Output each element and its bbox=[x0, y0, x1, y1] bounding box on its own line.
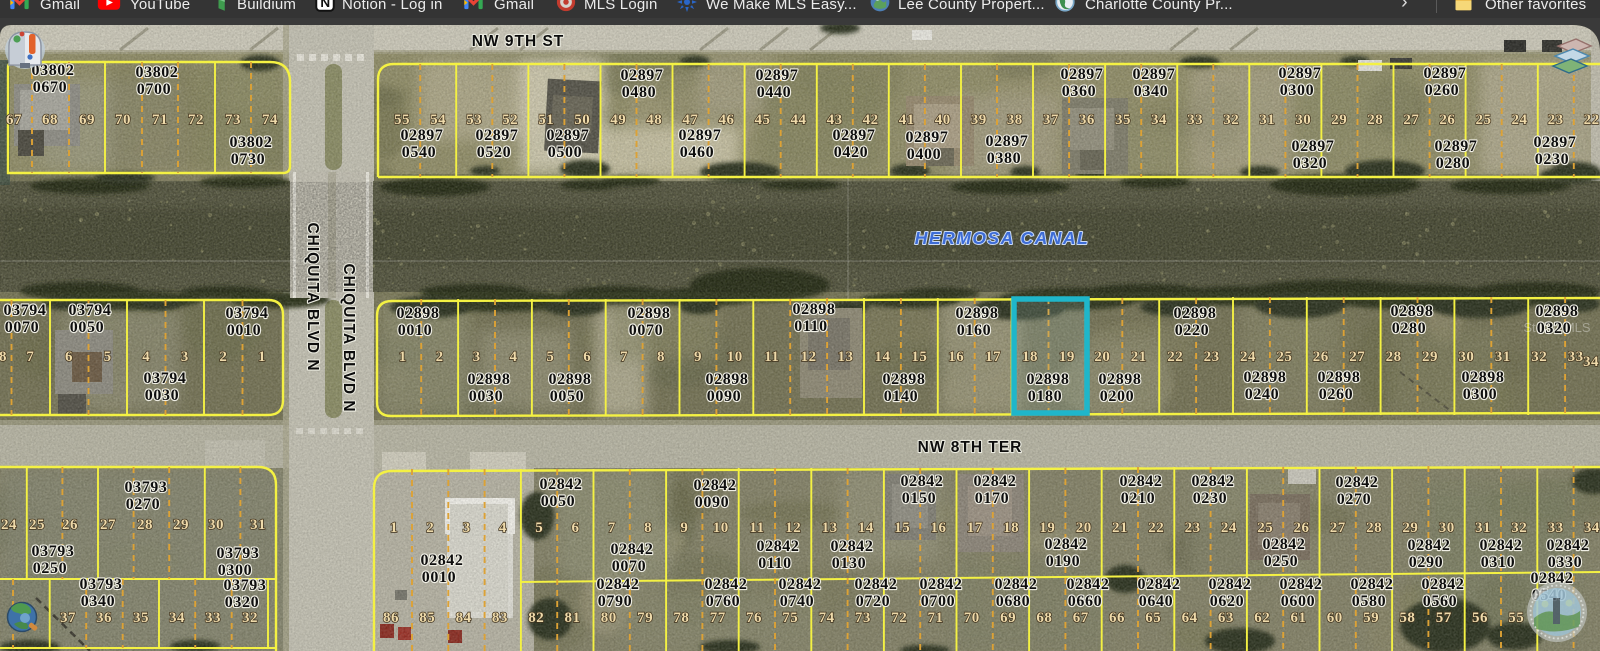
svg-text:24: 24 bbox=[1240, 349, 1256, 365]
svg-text:02898: 02898 bbox=[883, 371, 926, 388]
svg-text:02898: 02898 bbox=[706, 371, 749, 388]
svg-text:03793: 03793 bbox=[224, 577, 267, 594]
svg-text:32: 32 bbox=[1511, 520, 1527, 536]
svg-text:23: 23 bbox=[1548, 112, 1564, 128]
svg-text:0220: 0220 bbox=[1175, 322, 1209, 339]
svg-text:02842: 02842 bbox=[611, 541, 654, 558]
svg-text:0360: 0360 bbox=[1062, 83, 1096, 100]
svg-text:12: 12 bbox=[801, 349, 817, 365]
svg-text:02898: 02898 bbox=[1318, 369, 1361, 386]
svg-text:4: 4 bbox=[499, 520, 507, 536]
svg-text:72: 72 bbox=[891, 610, 907, 626]
svg-text:02842: 02842 bbox=[421, 552, 464, 569]
svg-text:74: 74 bbox=[819, 610, 835, 626]
svg-text:77: 77 bbox=[710, 610, 726, 626]
svg-text:58: 58 bbox=[1399, 610, 1415, 626]
svg-text:0400: 0400 bbox=[907, 146, 941, 163]
svg-text:24: 24 bbox=[1221, 520, 1237, 536]
svg-text:02842: 02842 bbox=[705, 576, 748, 593]
svg-text:02842: 02842 bbox=[995, 576, 1038, 593]
svg-text:21: 21 bbox=[1112, 520, 1128, 536]
svg-text:30: 30 bbox=[208, 517, 224, 533]
svg-text:19: 19 bbox=[1039, 520, 1055, 536]
svg-text:0090: 0090 bbox=[695, 494, 729, 511]
svg-text:0010: 0010 bbox=[227, 322, 261, 339]
svg-text:02897: 02897 bbox=[547, 127, 590, 144]
svg-text:0170: 0170 bbox=[975, 490, 1009, 507]
svg-text:0030: 0030 bbox=[145, 387, 179, 404]
svg-text:29: 29 bbox=[1331, 112, 1347, 128]
svg-text:34: 34 bbox=[1584, 520, 1600, 536]
svg-text:66: 66 bbox=[1109, 610, 1125, 626]
svg-text:0050: 0050 bbox=[550, 388, 584, 405]
svg-text:27: 27 bbox=[1403, 112, 1419, 128]
svg-text:20: 20 bbox=[1094, 349, 1110, 365]
svg-text:4: 4 bbox=[142, 349, 150, 365]
svg-text:02897: 02897 bbox=[679, 127, 722, 144]
svg-text:0070: 0070 bbox=[629, 322, 663, 339]
svg-text:32: 32 bbox=[242, 610, 258, 626]
svg-text:0240: 0240 bbox=[1245, 386, 1279, 403]
svg-text:03793: 03793 bbox=[125, 479, 168, 496]
svg-text:0560: 0560 bbox=[1423, 593, 1457, 610]
svg-text:02842: 02842 bbox=[1138, 576, 1181, 593]
svg-text:0300: 0300 bbox=[1280, 82, 1314, 99]
svg-text:34: 34 bbox=[1151, 112, 1167, 128]
svg-text:02842: 02842 bbox=[1192, 473, 1235, 490]
svg-text:25: 25 bbox=[1276, 349, 1292, 365]
svg-text:73: 73 bbox=[855, 610, 871, 626]
svg-text:30: 30 bbox=[1439, 520, 1455, 536]
svg-text:16: 16 bbox=[931, 520, 947, 536]
svg-text:27: 27 bbox=[100, 517, 116, 533]
svg-text:8: 8 bbox=[0, 349, 7, 365]
svg-text:0210: 0210 bbox=[1121, 490, 1155, 507]
svg-text:0320: 0320 bbox=[225, 594, 259, 611]
svg-text:79: 79 bbox=[637, 610, 653, 626]
svg-text:75: 75 bbox=[782, 610, 798, 626]
svg-text:25: 25 bbox=[1257, 520, 1273, 536]
svg-text:8: 8 bbox=[644, 520, 652, 536]
svg-text:44: 44 bbox=[791, 112, 807, 128]
svg-text:74: 74 bbox=[262, 112, 278, 128]
svg-text:26: 26 bbox=[1439, 112, 1455, 128]
svg-text:02842: 02842 bbox=[779, 576, 822, 593]
svg-text:02842: 02842 bbox=[1263, 536, 1306, 553]
svg-text:33: 33 bbox=[1187, 112, 1203, 128]
svg-text:0340: 0340 bbox=[1134, 83, 1168, 100]
svg-text:46: 46 bbox=[719, 112, 735, 128]
svg-text:0310: 0310 bbox=[1481, 554, 1515, 571]
svg-text:0680: 0680 bbox=[996, 593, 1030, 610]
svg-text:02898: 02898 bbox=[1027, 371, 1070, 388]
svg-text:32: 32 bbox=[1531, 349, 1547, 365]
svg-text:24: 24 bbox=[1512, 112, 1528, 128]
svg-text:0160: 0160 bbox=[957, 322, 991, 339]
svg-text:80: 80 bbox=[601, 610, 617, 626]
svg-text:02842: 02842 bbox=[1351, 576, 1394, 593]
svg-text:7: 7 bbox=[608, 520, 616, 536]
svg-text:11: 11 bbox=[749, 520, 764, 536]
svg-text:29: 29 bbox=[173, 517, 189, 533]
svg-text:0580: 0580 bbox=[1352, 593, 1386, 610]
svg-text:02842: 02842 bbox=[1408, 537, 1451, 554]
svg-text:0640: 0640 bbox=[1139, 593, 1173, 610]
svg-text:21: 21 bbox=[1131, 349, 1147, 365]
svg-text:76: 76 bbox=[746, 610, 762, 626]
svg-text:14: 14 bbox=[858, 520, 874, 536]
svg-text:28: 28 bbox=[137, 517, 153, 533]
svg-text:0270: 0270 bbox=[1337, 491, 1371, 508]
svg-text:0320: 0320 bbox=[1537, 320, 1571, 337]
svg-text:0010: 0010 bbox=[422, 569, 456, 586]
svg-text:0520: 0520 bbox=[477, 144, 511, 161]
svg-text:0740: 0740 bbox=[780, 593, 814, 610]
svg-text:3: 3 bbox=[473, 349, 481, 365]
svg-text:31: 31 bbox=[1495, 349, 1511, 365]
svg-text:71: 71 bbox=[152, 112, 168, 128]
svg-text:0180: 0180 bbox=[1028, 388, 1062, 405]
svg-text:18: 18 bbox=[1003, 520, 1019, 536]
svg-text:0270: 0270 bbox=[126, 496, 160, 513]
svg-text:47: 47 bbox=[682, 112, 698, 128]
svg-text:34: 34 bbox=[1583, 354, 1599, 370]
svg-text:38: 38 bbox=[1007, 112, 1023, 128]
svg-text:31: 31 bbox=[250, 517, 266, 533]
svg-text:2: 2 bbox=[436, 349, 444, 365]
svg-text:03793: 03793 bbox=[32, 543, 75, 560]
svg-text:32: 32 bbox=[1223, 112, 1239, 128]
svg-text:31: 31 bbox=[1475, 520, 1491, 536]
svg-text:6: 6 bbox=[572, 520, 580, 536]
svg-text:02897: 02897 bbox=[476, 127, 519, 144]
svg-text:5: 5 bbox=[104, 349, 112, 365]
svg-text:15: 15 bbox=[894, 520, 910, 536]
svg-text:12: 12 bbox=[785, 520, 801, 536]
svg-text:10: 10 bbox=[727, 349, 743, 365]
svg-text:54: 54 bbox=[430, 112, 446, 128]
svg-text:0300: 0300 bbox=[1463, 386, 1497, 403]
svg-text:15: 15 bbox=[911, 349, 927, 365]
svg-text:72: 72 bbox=[188, 112, 204, 128]
svg-text:83: 83 bbox=[492, 610, 508, 626]
svg-text:13: 13 bbox=[838, 349, 854, 365]
svg-text:34: 34 bbox=[169, 610, 185, 626]
svg-text:02898: 02898 bbox=[793, 301, 836, 318]
svg-text:81: 81 bbox=[565, 610, 581, 626]
svg-text:13: 13 bbox=[822, 520, 838, 536]
svg-text:02898: 02898 bbox=[956, 305, 999, 322]
svg-text:26: 26 bbox=[1313, 349, 1329, 365]
svg-text:28: 28 bbox=[1386, 349, 1402, 365]
svg-text:0600: 0600 bbox=[1281, 593, 1315, 610]
svg-text:0330: 0330 bbox=[1548, 554, 1582, 571]
svg-text:23: 23 bbox=[1204, 349, 1220, 365]
svg-text:2: 2 bbox=[426, 520, 434, 536]
svg-text:CHIQUITA BLVD N: CHIQUITA BLVD N bbox=[340, 263, 357, 412]
svg-text:0340: 0340 bbox=[81, 593, 115, 610]
svg-text:0700: 0700 bbox=[921, 593, 955, 610]
svg-text:60: 60 bbox=[1327, 610, 1343, 626]
svg-text:0070: 0070 bbox=[612, 558, 646, 575]
svg-text:02898: 02898 bbox=[468, 371, 511, 388]
svg-text:17: 17 bbox=[985, 349, 1001, 365]
svg-text:24: 24 bbox=[1, 517, 17, 533]
svg-text:35: 35 bbox=[1115, 112, 1131, 128]
svg-text:03794: 03794 bbox=[226, 305, 269, 322]
svg-text:02842: 02842 bbox=[974, 473, 1017, 490]
svg-text:7: 7 bbox=[26, 349, 34, 365]
svg-text:02898: 02898 bbox=[397, 305, 440, 322]
svg-text:69: 69 bbox=[1000, 610, 1016, 626]
svg-text:31: 31 bbox=[1259, 112, 1275, 128]
svg-text:67: 67 bbox=[6, 112, 22, 128]
svg-text:02842: 02842 bbox=[855, 576, 898, 593]
svg-text:02897: 02897 bbox=[833, 127, 876, 144]
svg-text:57: 57 bbox=[1436, 610, 1452, 626]
svg-text:NW 8TH TER: NW 8TH TER bbox=[918, 439, 1023, 456]
svg-text:02898: 02898 bbox=[1391, 303, 1434, 320]
svg-text:73: 73 bbox=[225, 112, 241, 128]
svg-text:0230: 0230 bbox=[1535, 151, 1569, 168]
svg-text:02897: 02897 bbox=[1534, 134, 1577, 151]
svg-text:02898: 02898 bbox=[1174, 305, 1217, 322]
svg-text:26: 26 bbox=[62, 517, 78, 533]
svg-text:1: 1 bbox=[258, 349, 266, 365]
svg-text:02842: 02842 bbox=[831, 538, 874, 555]
svg-text:37: 37 bbox=[1043, 112, 1059, 128]
svg-text:3: 3 bbox=[181, 349, 189, 365]
svg-text:67: 67 bbox=[1073, 610, 1089, 626]
svg-text:02897: 02897 bbox=[986, 133, 1029, 150]
svg-text:22: 22 bbox=[1167, 349, 1183, 365]
svg-text:0280: 0280 bbox=[1436, 155, 1470, 172]
svg-text:02897: 02897 bbox=[1133, 66, 1176, 83]
svg-text:0790: 0790 bbox=[598, 593, 632, 610]
svg-text:10: 10 bbox=[713, 520, 729, 536]
svg-text:0030: 0030 bbox=[469, 388, 503, 405]
svg-text:28: 28 bbox=[1366, 520, 1382, 536]
svg-text:43: 43 bbox=[827, 112, 843, 128]
svg-text:52: 52 bbox=[502, 112, 518, 128]
svg-text:03793: 03793 bbox=[217, 545, 260, 562]
svg-text:02898: 02898 bbox=[1462, 369, 1505, 386]
svg-text:0420: 0420 bbox=[834, 144, 868, 161]
svg-text:0660: 0660 bbox=[1068, 593, 1102, 610]
svg-text:02897: 02897 bbox=[1279, 65, 1322, 82]
svg-text:51: 51 bbox=[538, 112, 554, 128]
svg-text:55: 55 bbox=[394, 112, 410, 128]
svg-text:02897: 02897 bbox=[756, 67, 799, 84]
svg-text:4: 4 bbox=[510, 349, 518, 365]
svg-text:02898: 02898 bbox=[1244, 369, 1287, 386]
svg-text:02897: 02897 bbox=[621, 67, 664, 84]
svg-text:03794: 03794 bbox=[4, 302, 47, 319]
svg-text:5: 5 bbox=[546, 349, 554, 365]
svg-text:48: 48 bbox=[646, 112, 662, 128]
svg-text:42: 42 bbox=[863, 112, 879, 128]
svg-text:27: 27 bbox=[1330, 520, 1346, 536]
svg-text:CHIQUITA BLVD N: CHIQUITA BLVD N bbox=[304, 222, 321, 371]
svg-text:0280: 0280 bbox=[1392, 320, 1426, 337]
svg-text:0730: 0730 bbox=[231, 151, 265, 168]
svg-text:0720: 0720 bbox=[856, 593, 890, 610]
svg-text:33: 33 bbox=[1568, 349, 1584, 365]
svg-text:69: 69 bbox=[79, 112, 95, 128]
svg-text:02842: 02842 bbox=[1547, 537, 1590, 554]
svg-text:20: 20 bbox=[1076, 520, 1092, 536]
svg-text:02842: 02842 bbox=[1067, 576, 1110, 593]
svg-text:41: 41 bbox=[899, 112, 915, 128]
svg-text:37: 37 bbox=[60, 610, 76, 626]
svg-text:0150: 0150 bbox=[902, 490, 936, 507]
svg-text:35: 35 bbox=[133, 610, 149, 626]
svg-text:65: 65 bbox=[1145, 610, 1161, 626]
svg-text:0320: 0320 bbox=[1293, 155, 1327, 172]
svg-text:22: 22 bbox=[1148, 520, 1164, 536]
svg-text:0190: 0190 bbox=[1046, 553, 1080, 570]
svg-text:14: 14 bbox=[875, 349, 891, 365]
svg-text:0260: 0260 bbox=[1319, 386, 1353, 403]
svg-text:0380: 0380 bbox=[987, 150, 1021, 167]
svg-text:36: 36 bbox=[96, 610, 112, 626]
svg-text:25: 25 bbox=[1476, 112, 1492, 128]
svg-text:02897: 02897 bbox=[1061, 66, 1104, 83]
svg-text:02842: 02842 bbox=[920, 576, 963, 593]
svg-text:02842: 02842 bbox=[1480, 537, 1523, 554]
svg-text:9: 9 bbox=[680, 520, 688, 536]
svg-text:03793: 03793 bbox=[80, 576, 123, 593]
svg-text:64: 64 bbox=[1182, 610, 1198, 626]
svg-text:02842: 02842 bbox=[694, 477, 737, 494]
svg-text:02897: 02897 bbox=[1435, 138, 1478, 155]
svg-text:03794: 03794 bbox=[144, 370, 187, 387]
svg-text:25: 25 bbox=[29, 517, 45, 533]
svg-text:53: 53 bbox=[466, 112, 482, 128]
svg-text:03794: 03794 bbox=[69, 302, 112, 319]
svg-text:0110: 0110 bbox=[794, 318, 828, 335]
svg-text:49: 49 bbox=[610, 112, 626, 128]
svg-text:84: 84 bbox=[456, 610, 472, 626]
svg-text:1: 1 bbox=[399, 349, 407, 365]
svg-text:0130: 0130 bbox=[832, 555, 866, 572]
svg-text:02842: 02842 bbox=[597, 576, 640, 593]
svg-text:0670: 0670 bbox=[33, 79, 67, 96]
svg-text:HERMOSA CANAL: HERMOSA CANAL bbox=[915, 228, 1089, 248]
svg-text:16: 16 bbox=[948, 349, 964, 365]
svg-text:02842: 02842 bbox=[1120, 473, 1163, 490]
svg-text:78: 78 bbox=[673, 610, 689, 626]
svg-text:5: 5 bbox=[535, 520, 543, 536]
svg-text:11: 11 bbox=[764, 349, 779, 365]
svg-text:0540: 0540 bbox=[402, 144, 436, 161]
svg-text:6: 6 bbox=[583, 349, 591, 365]
svg-text:29: 29 bbox=[1422, 349, 1438, 365]
svg-text:0010: 0010 bbox=[398, 322, 432, 339]
svg-text:2: 2 bbox=[219, 349, 227, 365]
svg-text:02898: 02898 bbox=[628, 305, 671, 322]
svg-text:1: 1 bbox=[390, 520, 398, 536]
svg-text:02898: 02898 bbox=[1099, 371, 1142, 388]
svg-text:61: 61 bbox=[1291, 610, 1307, 626]
svg-text:0250: 0250 bbox=[1264, 553, 1298, 570]
svg-text:02842: 02842 bbox=[901, 473, 944, 490]
svg-text:27: 27 bbox=[1349, 349, 1365, 365]
svg-text:8: 8 bbox=[657, 349, 665, 365]
svg-text:70: 70 bbox=[964, 610, 980, 626]
svg-text:19: 19 bbox=[1059, 349, 1075, 365]
svg-text:70: 70 bbox=[115, 112, 131, 128]
svg-text:50: 50 bbox=[574, 112, 590, 128]
svg-text:02897: 02897 bbox=[1292, 138, 1335, 155]
svg-text:45: 45 bbox=[755, 112, 771, 128]
svg-text:82: 82 bbox=[528, 610, 544, 626]
svg-text:02842: 02842 bbox=[1209, 576, 1252, 593]
svg-text:0760: 0760 bbox=[706, 593, 740, 610]
svg-text:18: 18 bbox=[1022, 349, 1038, 365]
svg-text:68: 68 bbox=[42, 112, 58, 128]
svg-text:0500: 0500 bbox=[548, 144, 582, 161]
svg-text:63: 63 bbox=[1218, 610, 1234, 626]
svg-text:0090: 0090 bbox=[707, 388, 741, 405]
svg-text:33: 33 bbox=[205, 610, 221, 626]
svg-text:02898: 02898 bbox=[549, 371, 592, 388]
svg-text:02842: 02842 bbox=[1045, 536, 1088, 553]
svg-text:30: 30 bbox=[1458, 349, 1474, 365]
svg-text:39: 39 bbox=[971, 112, 987, 128]
svg-text:02897: 02897 bbox=[401, 127, 444, 144]
svg-text:02842: 02842 bbox=[1422, 576, 1465, 593]
svg-text:17: 17 bbox=[967, 520, 983, 536]
svg-text:NW 9TH ST: NW 9TH ST bbox=[472, 33, 565, 50]
svg-text:30: 30 bbox=[1295, 112, 1311, 128]
svg-text:0620: 0620 bbox=[1210, 593, 1244, 610]
svg-text:9: 9 bbox=[694, 349, 702, 365]
svg-text:03802: 03802 bbox=[230, 134, 273, 151]
svg-text:02898: 02898 bbox=[1536, 303, 1579, 320]
svg-text:02842: 02842 bbox=[1336, 474, 1379, 491]
svg-text:0230: 0230 bbox=[1193, 490, 1227, 507]
svg-text:26: 26 bbox=[1294, 520, 1310, 536]
svg-text:22: 22 bbox=[1584, 112, 1600, 128]
svg-text:02897: 02897 bbox=[906, 129, 949, 146]
svg-text:0050: 0050 bbox=[70, 319, 104, 336]
svg-text:0200: 0200 bbox=[1100, 388, 1134, 405]
svg-text:0250: 0250 bbox=[33, 560, 67, 577]
svg-text:7: 7 bbox=[620, 349, 628, 365]
svg-text:02897: 02897 bbox=[1424, 65, 1467, 82]
svg-text:0140: 0140 bbox=[884, 388, 918, 405]
svg-text:02842: 02842 bbox=[540, 476, 583, 493]
svg-text:33: 33 bbox=[1548, 520, 1564, 536]
svg-text:29: 29 bbox=[1402, 520, 1418, 536]
svg-text:02842: 02842 bbox=[1280, 576, 1323, 593]
svg-text:23: 23 bbox=[1185, 520, 1201, 536]
svg-text:40: 40 bbox=[935, 112, 951, 128]
svg-text:0440: 0440 bbox=[757, 84, 791, 101]
svg-text:36: 36 bbox=[1079, 112, 1095, 128]
svg-text:0110: 0110 bbox=[758, 555, 792, 572]
svg-text:59: 59 bbox=[1363, 610, 1379, 626]
svg-text:03802: 03802 bbox=[136, 64, 179, 81]
svg-text:0460: 0460 bbox=[680, 144, 714, 161]
svg-text:0290: 0290 bbox=[1409, 554, 1443, 571]
svg-text:0070: 0070 bbox=[5, 319, 39, 336]
svg-text:56: 56 bbox=[1472, 610, 1488, 626]
svg-text:62: 62 bbox=[1254, 610, 1270, 626]
svg-text:6: 6 bbox=[65, 349, 73, 365]
svg-text:0050: 0050 bbox=[541, 493, 575, 510]
